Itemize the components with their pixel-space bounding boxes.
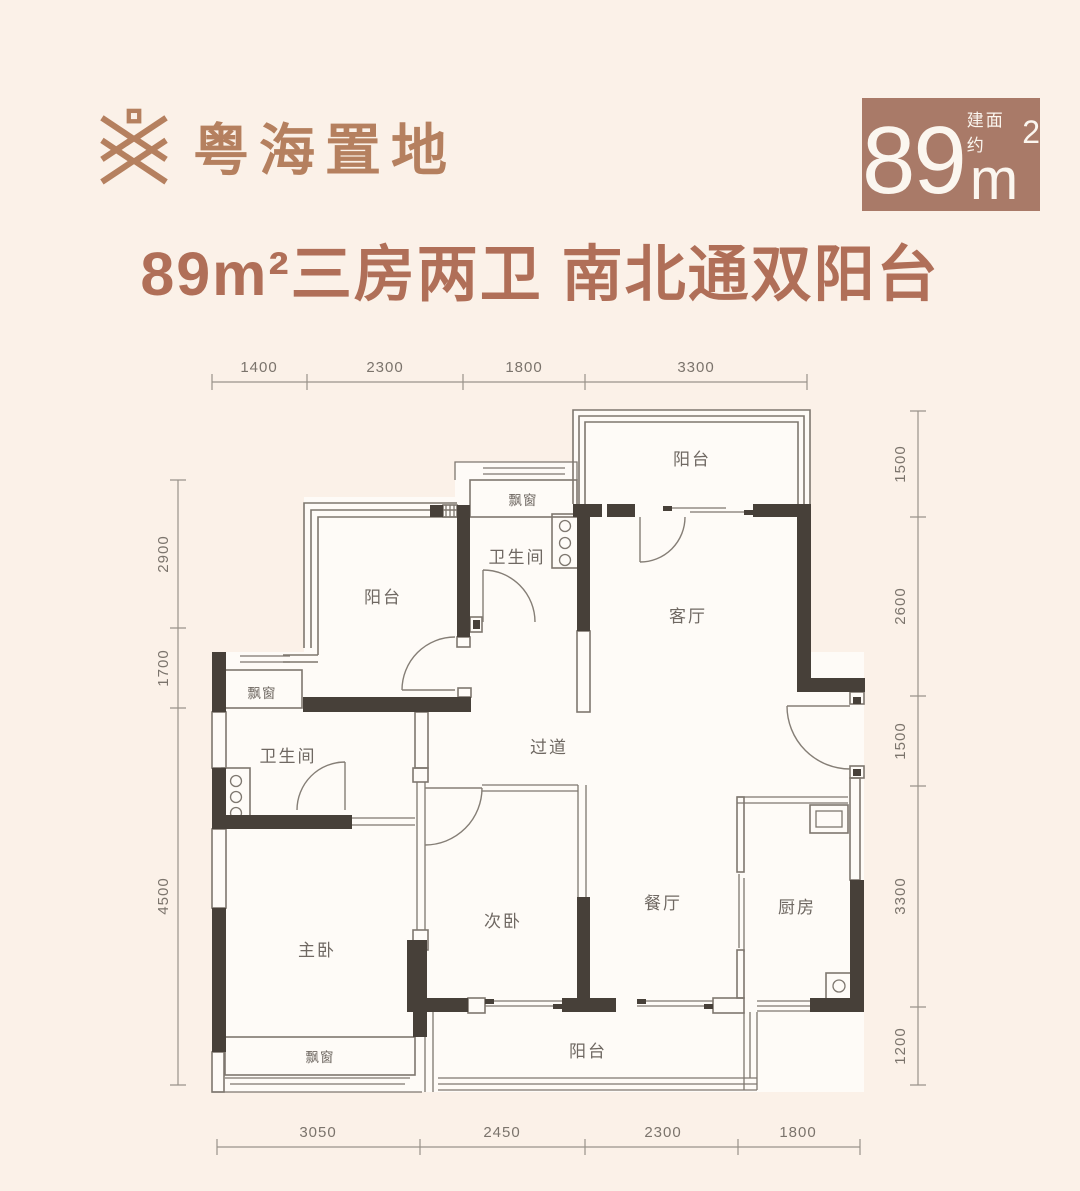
dim-label: 1800: [779, 1124, 816, 1141]
dim-label: 1500: [892, 445, 909, 482]
room-label-bath-top: 卫生间: [489, 548, 546, 567]
dim-label: 1800: [505, 359, 542, 376]
dimensions-left: 2900 1700 4500: [155, 480, 186, 1085]
room-label-bedroom2: 次卧: [484, 912, 522, 931]
dim-label: 2450: [483, 1124, 520, 1141]
dimensions-top: 1400 2300 1800 3300: [212, 359, 807, 390]
dim-label: 3300: [892, 877, 909, 914]
room-label-hallway: 过道: [530, 738, 568, 757]
dimensions-right: 1500 2600 1500 3300 1200: [892, 411, 926, 1085]
room-label-living: 客厅: [669, 607, 707, 626]
room-label-master: 主卧: [298, 941, 336, 960]
dim-label: 2300: [644, 1124, 681, 1141]
room-label-bay-left: 飘窗: [248, 685, 277, 701]
room-label-bath-left: 卫生间: [260, 747, 317, 766]
dim-label: 3300: [677, 359, 714, 376]
dim-label: 1400: [240, 359, 277, 376]
room-label-kitchen: 厨房: [778, 898, 816, 917]
floorplan-page: 粤海置地 89 建面约 m 2 89m²三房两卫 南北通双阳台: [0, 0, 1080, 1191]
dim-label: 2300: [366, 359, 403, 376]
dimensions-bottom: 3050 2450 2300 1800: [217, 1124, 860, 1155]
dim-label: 2600: [892, 587, 909, 624]
dim-label: 1700: [155, 649, 172, 686]
dim-label: 4500: [155, 877, 172, 914]
room-label-bay-bottom: 飘窗: [306, 1049, 335, 1065]
floor-plan: 阳台 飘窗 卫生间 客厅 阳台 飘窗 卫生间 过道 次卧 餐厅 厨房 主卧 飘窗…: [0, 0, 1080, 1191]
dim-label: 1500: [892, 722, 909, 759]
room-label-balcony-bottom: 阳台: [569, 1042, 607, 1061]
room-label-dining: 餐厅: [644, 894, 682, 913]
dim-label: 1200: [892, 1027, 909, 1064]
dim-label: 3050: [299, 1124, 336, 1141]
room-label-balcony-left: 阳台: [364, 588, 402, 607]
room-label-balcony-top: 阳台: [673, 450, 711, 469]
dim-label: 2900: [155, 535, 172, 572]
room-label-bay-top: 飘窗: [509, 492, 538, 508]
